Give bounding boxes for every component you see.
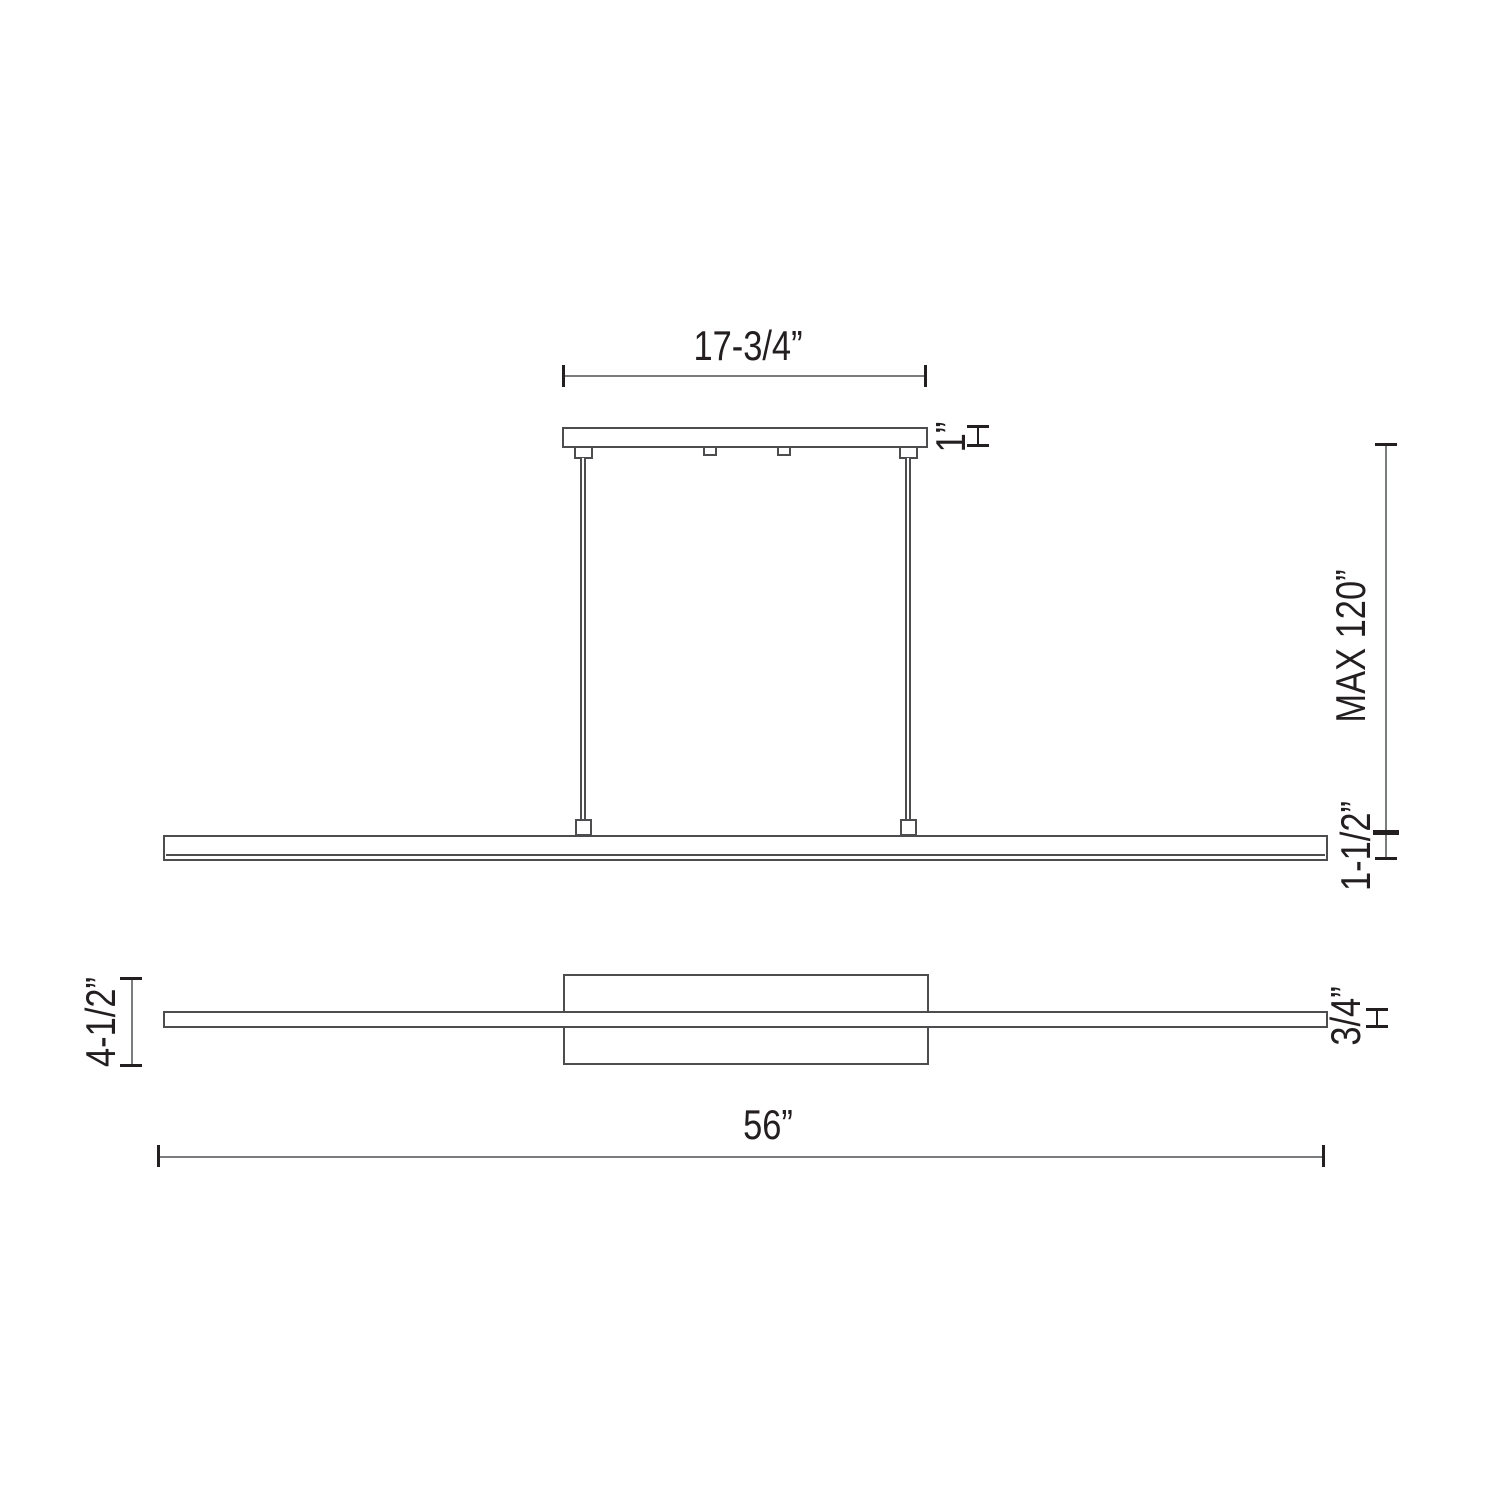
rod-connector-right (900, 819, 917, 836)
overall-depth-tick-bottom (120, 1064, 142, 1067)
fixture-lens-line (166, 854, 1325, 856)
overall-depth-label: 4-1/2” (80, 977, 122, 1067)
canopy-height-label: 1” (930, 422, 972, 453)
suspension-max-label: MAX 120” (1330, 569, 1372, 722)
canopy-width-tick-left (562, 365, 565, 387)
fixture-bar-side (163, 835, 1328, 861)
ceiling-canopy (562, 427, 928, 448)
canopy-screw-right (777, 446, 791, 456)
technical-drawing-canvas: 17-3/4” 1” MAX 120” 1-1/2” (0, 0, 1500, 1500)
overall-length-tick-right (1322, 1145, 1325, 1167)
suspension-rod-left (580, 458, 586, 819)
bar-depth-tick-bottom (1366, 1025, 1388, 1028)
suspension-tick-top (1375, 443, 1397, 446)
overall-length-tick-left (157, 1145, 160, 1167)
suspension-dimension-line (1385, 445, 1387, 859)
fixture-height-label: 1-1/2” (1335, 801, 1377, 891)
canopy-height-tick-top (967, 425, 989, 428)
overall-depth-tick-top (120, 977, 142, 980)
canopy-screw-left (703, 446, 717, 456)
overall-depth-dimension-line (131, 979, 133, 1067)
bar-depth-label: 3/4” (1325, 986, 1367, 1045)
fixture-bar-plan (163, 1011, 1328, 1028)
canopy-width-dimension-line (564, 375, 926, 377)
rod-connector-left (575, 819, 592, 836)
canopy-width-label: 17-3/4” (693, 325, 802, 367)
overall-length-label: 56” (743, 1104, 793, 1146)
suspension-rod-right (905, 458, 911, 819)
overall-length-dimension-line (158, 1156, 1323, 1158)
canopy-width-tick-right (924, 365, 927, 387)
bar-depth-tick-top (1366, 1008, 1388, 1011)
canopy-height-tick-bottom (967, 444, 989, 447)
